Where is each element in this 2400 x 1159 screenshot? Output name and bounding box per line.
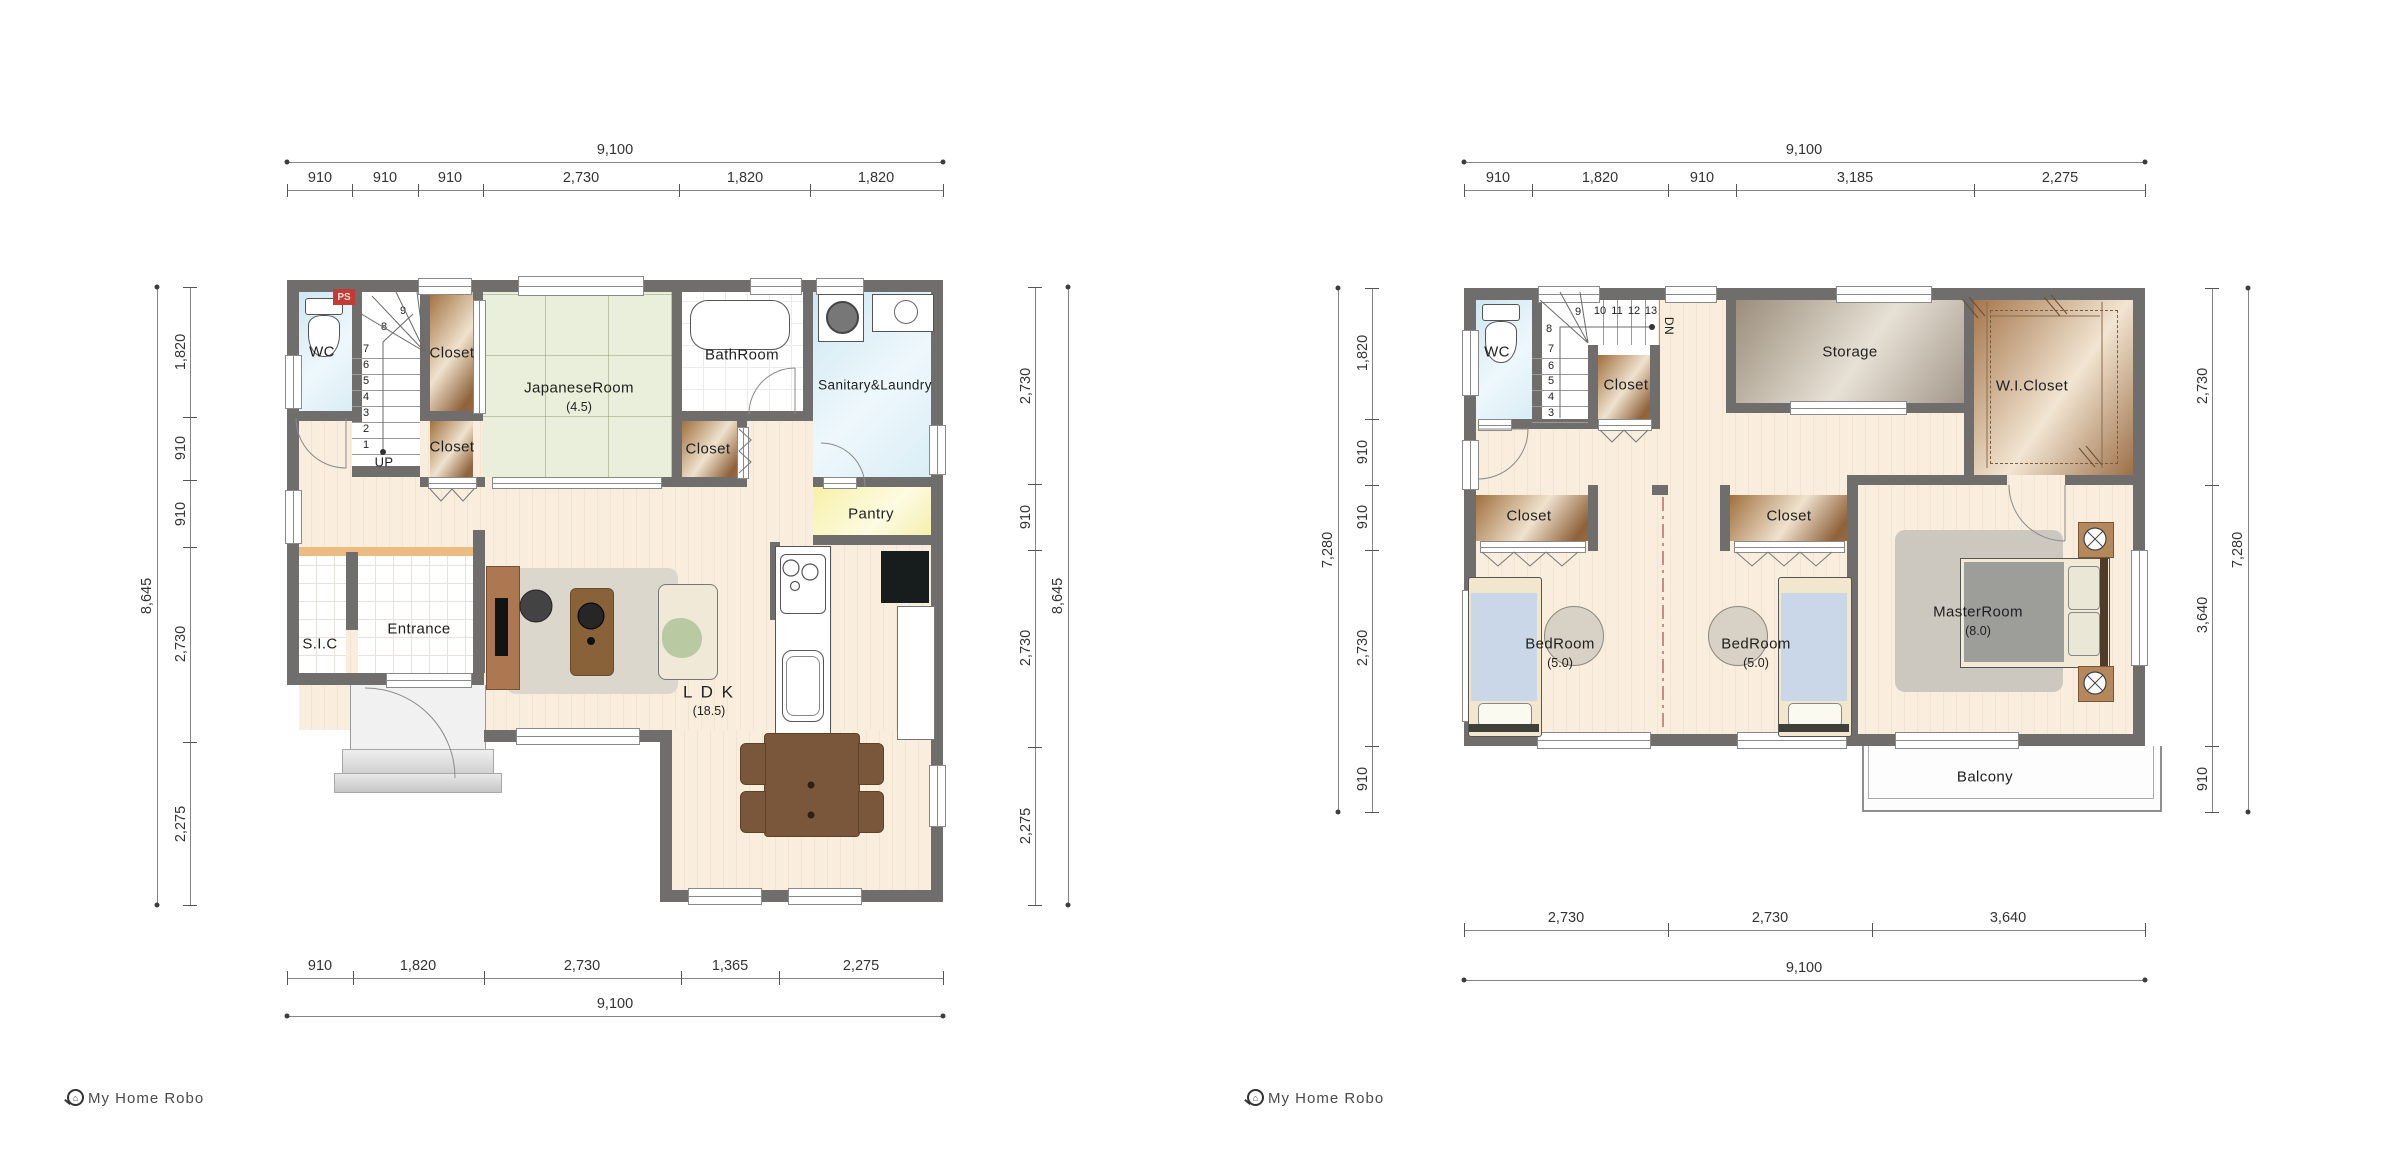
room-label-japanese: JapaneseRoom [524, 381, 634, 396]
room-label-wc: WC [1484, 345, 1510, 360]
room-label-sanitary: Sanitary&Laundry [818, 378, 932, 392]
logo-my-home-robo: ⌂ My Home Robo [63, 1088, 204, 1108]
floor1-room-sic [299, 552, 346, 673]
refrigerator [881, 551, 929, 603]
closet-door [1598, 419, 1652, 431]
kitchen-sink-basin [786, 656, 820, 716]
sliding-door [1790, 401, 1907, 415]
floor1-porch [350, 685, 486, 749]
room-label-bath: BathRoom [705, 348, 779, 363]
room-size-bedroom1: (5.0) [1547, 657, 1573, 670]
dining-chair [858, 743, 884, 785]
bed-headboard [1779, 724, 1849, 732]
closet-door [1480, 541, 1586, 553]
room-label-master: MasterRoom [1933, 605, 2023, 620]
dining-chair [858, 791, 884, 833]
sofa-throw [662, 618, 702, 658]
toilet-tank [1482, 304, 1520, 321]
window [285, 355, 302, 409]
window [285, 490, 302, 544]
low-table [570, 588, 614, 676]
room-label-closet-lower: Closet [430, 440, 475, 455]
tv [495, 598, 508, 656]
master-bed-headboard [2100, 558, 2108, 666]
sliding-door [492, 477, 662, 489]
floorplan-document: PS 1 2 3 4 5 6 7 8 9 UP WC [0, 0, 2400, 1159]
window [788, 888, 862, 905]
room-label-pantry: Pantry [848, 507, 894, 522]
stove [780, 554, 826, 614]
window [816, 278, 864, 295]
magnifier-house-icon: ⌂ [1243, 1088, 1263, 1108]
room-size-ldk: (18.5) [693, 705, 726, 718]
logo-text: My Home Robo [88, 1090, 204, 1107]
window [929, 765, 946, 827]
stairs-treads [1532, 343, 1588, 423]
room-label-sic: S.I.C [302, 637, 337, 652]
room-size-bedroom2: (5.0) [1743, 657, 1769, 670]
closet-door [428, 477, 477, 489]
window [516, 728, 640, 745]
closet-door [737, 427, 749, 479]
bathtub [690, 300, 790, 350]
logo-my-home-robo: ⌂ My Home Robo [1243, 1088, 1384, 1108]
window [2131, 550, 2148, 666]
window [1462, 440, 1479, 490]
dining-table [764, 733, 860, 837]
window [1462, 330, 1479, 396]
room-size-master: (8.0) [1965, 625, 1991, 638]
window [929, 425, 946, 475]
room-size-japanese: (4.5) [566, 401, 592, 414]
counter-side [897, 606, 935, 740]
washing-machine-drum [826, 301, 859, 334]
vanity-bowl [894, 300, 918, 324]
window [1537, 732, 1651, 749]
room-label-closet-stair: Closet [1604, 378, 1649, 393]
room-label-ldk: L D K [683, 684, 735, 701]
window [1836, 286, 1932, 303]
logo-text: My Home Robo [1268, 1090, 1384, 1107]
master-bed-pillow [2068, 612, 2100, 656]
dining-chair [740, 791, 766, 833]
room-label-closet2: Closet [1767, 509, 1812, 524]
balcony-door [1895, 732, 2019, 749]
window [750, 278, 802, 295]
door-opening [1478, 419, 1512, 431]
door-opening [823, 477, 857, 489]
room-label-wc: WC [309, 345, 335, 360]
room-label-closet-upper: Closet [430, 346, 475, 361]
floor1-porch-step1 [342, 749, 494, 775]
sliding-door [473, 300, 486, 414]
window [1665, 286, 1717, 303]
pipe-space-label: PS [333, 289, 355, 305]
room-label-closet-hall: Closet [686, 442, 731, 457]
stairs-dn-label: DN [1663, 317, 1675, 335]
window [418, 278, 472, 295]
room-label-entrance: Entrance [387, 622, 450, 637]
window [688, 888, 762, 905]
room-label-bedroom2: BedRoom [1721, 637, 1791, 652]
closet-door [1734, 541, 1845, 553]
room-label-bedroom1: BedRoom [1525, 637, 1595, 652]
room-label-balcony: Balcony [1957, 770, 2013, 785]
room-label-closet1: Closet [1507, 509, 1552, 524]
nightstand [2078, 522, 2114, 558]
window [518, 276, 644, 296]
nightstand [2078, 666, 2114, 702]
bed-headboard [1469, 724, 1539, 732]
bed-blanket [1781, 593, 1847, 701]
stairs-up-label: UP [375, 456, 394, 469]
magnifier-house-icon: ⌂ [63, 1088, 83, 1108]
master-bed-pillow [2068, 566, 2100, 610]
room-label-wic: W.I.Closet [1996, 379, 2068, 394]
floor1-room-entrance [358, 552, 473, 673]
dining-chair [740, 743, 766, 785]
entrance-door [386, 673, 472, 688]
room-label-storage: Storage [1822, 345, 1877, 360]
floor1-entrance-step-strip [299, 547, 473, 556]
floor1-porch-step2 [334, 773, 502, 793]
